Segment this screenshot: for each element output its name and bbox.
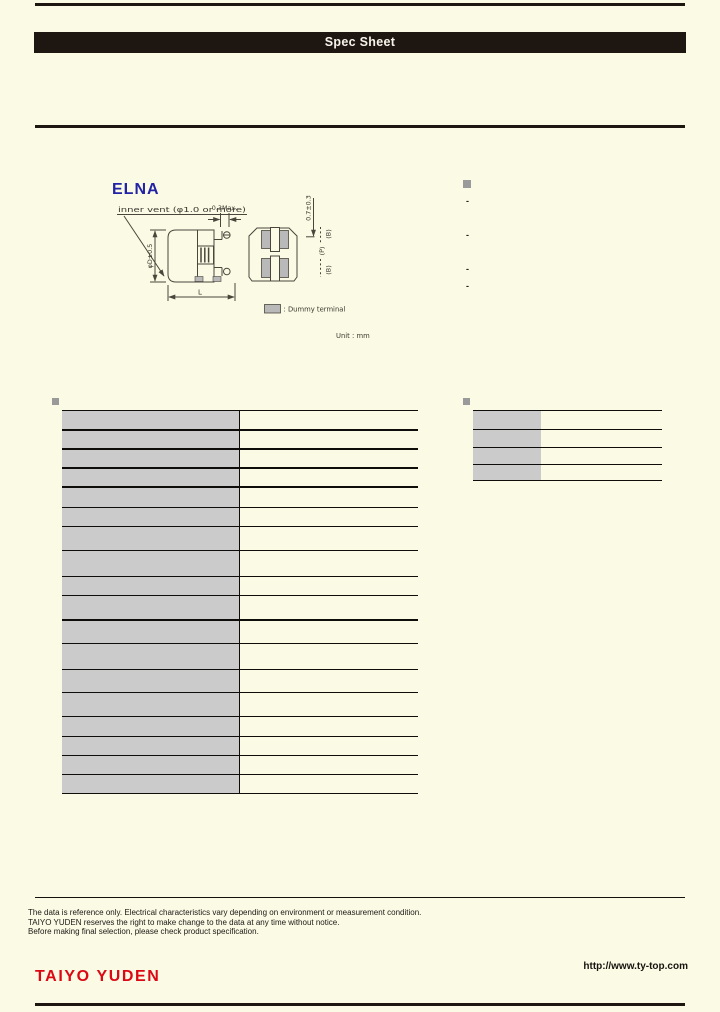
table-row [62, 551, 418, 577]
table-row [62, 527, 418, 551]
table-row [473, 465, 662, 481]
table-row [62, 508, 418, 527]
table-row [62, 411, 418, 431]
capacitor-can-outline [168, 230, 214, 282]
table-row [473, 411, 662, 430]
table-row [62, 644, 418, 670]
table-row [62, 450, 418, 469]
taiyo-yuden-logo: TAIYO YUDEN [35, 968, 160, 986]
diameter-dim-label: φD±0.5 [146, 244, 154, 269]
feature-list-item: - [466, 231, 476, 240]
table-row [62, 431, 418, 450]
height-dim-label: 0.7±0.3 [305, 195, 313, 221]
table-row [473, 430, 662, 448]
top-gap-dim-label: 0.3Max. [212, 204, 237, 212]
disclaimer-line: Before making final selection, please ch… [28, 927, 648, 937]
table-row [62, 469, 418, 488]
table-row [62, 693, 418, 717]
table-row [62, 577, 418, 596]
capacitor-dimension-drawing: inner vent (φ1.0 or more) 0.3Max. φD±0.5… [100, 195, 380, 345]
unit-note: Unit : mm [336, 332, 370, 340]
table-row [62, 621, 418, 644]
marking-table-section-bullet [463, 398, 470, 405]
feature-list-item: - [466, 197, 476, 206]
dummy-terminal-legend: : Dummy terminal [284, 306, 346, 314]
website-url: http://www.ty-top.com [488, 961, 688, 972]
feature-list-item: - [466, 265, 476, 274]
feature-list-item: - [466, 282, 476, 291]
spec-table-section-bullet [52, 398, 59, 405]
features-section-bullet [463, 180, 471, 188]
disclaimer-text: The data is reference only. Electrical c… [28, 908, 648, 937]
page-title: Spec Sheet [34, 32, 686, 53]
table-row [62, 756, 418, 775]
terminal-b-top-label: (B) [325, 229, 333, 238]
footer-rule [35, 897, 685, 898]
marking-table [473, 410, 662, 481]
length-dim-label: L [198, 289, 202, 297]
table-row [62, 596, 418, 621]
table-row [62, 717, 418, 737]
table-row [62, 775, 418, 794]
table-row [62, 670, 418, 693]
top-rule [35, 3, 685, 6]
positive-terminal-mark [224, 268, 231, 275]
spec-sheet-page: Spec Sheet ELNA [0, 0, 720, 1012]
table-row [62, 737, 418, 756]
disclaimer-line: TAIYO YUDEN reserves the right to make c… [28, 918, 648, 928]
terminal-pitch-label: (P) [318, 247, 326, 256]
disclaimer-line: The data is reference only. Electrical c… [28, 908, 648, 918]
bottom-rule [35, 1003, 685, 1006]
specifications-table [62, 410, 418, 794]
terminal-b-bottom-label: (B) [325, 265, 333, 274]
inner-vent-leader-arrow [124, 216, 164, 276]
table-row [62, 488, 418, 508]
header-divider-rule [35, 125, 685, 128]
table-row [473, 448, 662, 465]
